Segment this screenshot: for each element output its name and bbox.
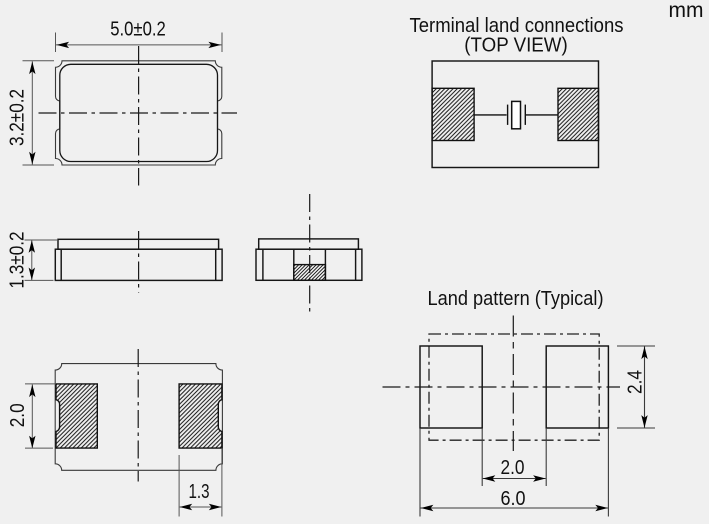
svg-text:5.0±0.2: 5.0±0.2 (110, 18, 166, 40)
svg-text:2.0: 2.0 (501, 457, 525, 479)
svg-text:mm: mm (669, 0, 704, 22)
svg-text:6.0: 6.0 (501, 488, 526, 510)
svg-text:(TOP VIEW): (TOP VIEW) (464, 35, 568, 57)
svg-text:1.3: 1.3 (189, 481, 210, 503)
svg-text:2.0: 2.0 (7, 403, 29, 427)
svg-text:3.2±0.2: 3.2±0.2 (7, 89, 29, 146)
svg-text:Land pattern (Typical): Land pattern (Typical) (428, 288, 604, 310)
svg-text:2.4: 2.4 (625, 370, 647, 394)
svg-text:1.3±0.2: 1.3±0.2 (7, 232, 29, 289)
